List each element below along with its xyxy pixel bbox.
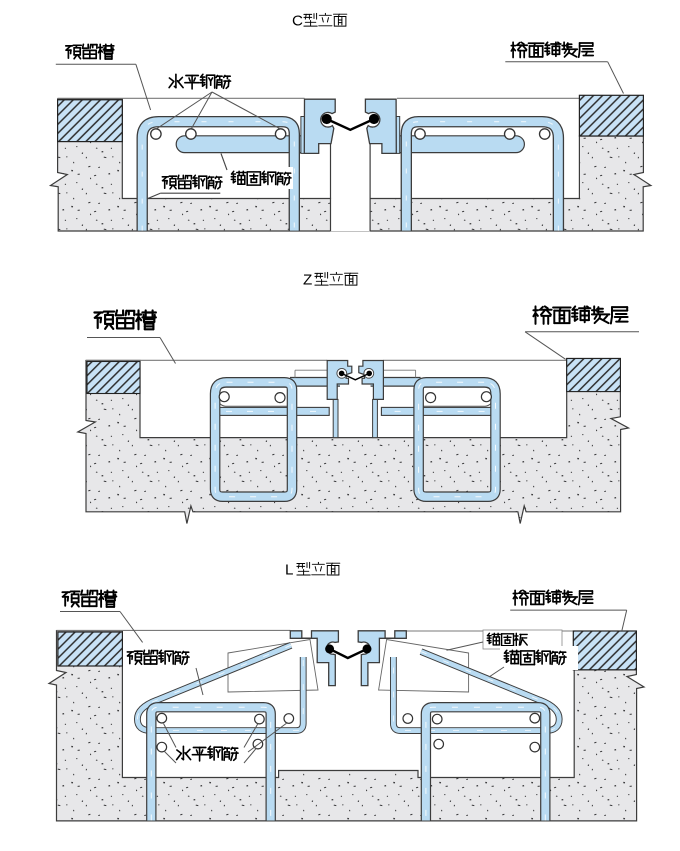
svg-text:C: C xyxy=(292,13,303,30)
svg-text:L: L xyxy=(285,562,293,579)
svg-text:Z: Z xyxy=(303,272,312,289)
